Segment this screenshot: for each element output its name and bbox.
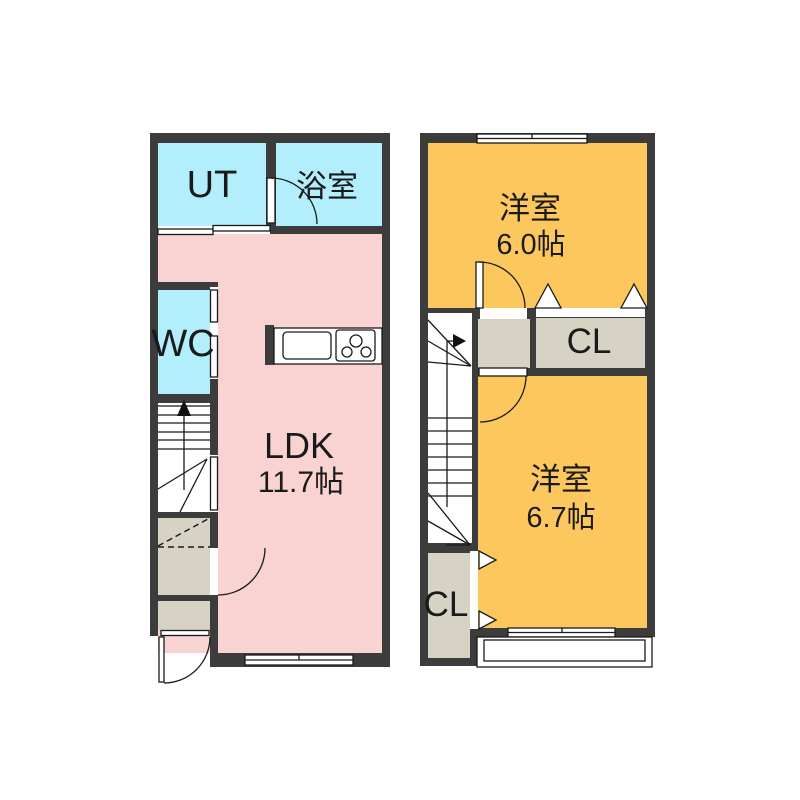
ut-label: UT [187, 164, 238, 206]
bedroom1-window [477, 134, 587, 143]
stairs-2f [428, 313, 472, 543]
bedroom1-door-leaf [476, 262, 483, 308]
sink-icon [283, 332, 331, 359]
stove-burner-icon [350, 335, 362, 347]
bedroom2-window [508, 628, 615, 637]
sliding-door-panel [158, 229, 213, 235]
entrance-threshold [161, 631, 209, 636]
closet2-door-opening [470, 551, 478, 629]
kitchen-side-wall [265, 325, 274, 365]
closet1-door-opening [536, 308, 645, 317]
hall-door-opening [210, 548, 218, 595]
stairs-entrance-wall [150, 512, 218, 518]
bedroom2-label: 洋室 [530, 462, 592, 497]
second-floor: 洋室 6.0帖 CL 洋室 6.7帖 CL [420, 133, 655, 667]
stove-burner-icon [342, 347, 352, 357]
wc-top-wall [150, 282, 218, 290]
bath-label: 浴室 [296, 169, 358, 204]
entrance-divider-wall [150, 595, 218, 601]
bedroom1-door-opening [480, 308, 527, 319]
entrance-door-leaf [159, 637, 164, 682]
wc-door-panel [211, 290, 218, 322]
entrance-hall [158, 518, 210, 630]
balcony [477, 637, 652, 667]
bedroom1-label: 洋室 [499, 191, 561, 226]
bedroom1-size-label: 6.0帖 [496, 228, 565, 261]
ldk-window [245, 655, 353, 665]
stove-burner-icon [361, 347, 371, 357]
kitchen-counter [265, 325, 382, 365]
hall-2f [478, 319, 530, 368]
ldk-size-label: 11.7帖 [258, 466, 344, 499]
closet1-label: CL [567, 322, 612, 361]
sliding-door-panel [213, 226, 270, 232]
wc-label: WC [151, 323, 214, 365]
stairs-opening-panel [211, 457, 218, 510]
bedroom2-size-label: 6.7帖 [526, 501, 595, 534]
ldk-label: LDK [264, 425, 334, 466]
closet2-label: CL [424, 585, 469, 624]
floor-plan-svg: UT 浴室 WC LDK 11.7帖 [0, 0, 800, 800]
first-floor: UT 浴室 WC LDK 11.7帖 [150, 133, 390, 683]
floor-plan: UT 浴室 WC LDK 11.7帖 [0, 0, 800, 800]
bedroom2-door-leaf [479, 368, 527, 376]
bath-door-leaf [267, 178, 275, 223]
